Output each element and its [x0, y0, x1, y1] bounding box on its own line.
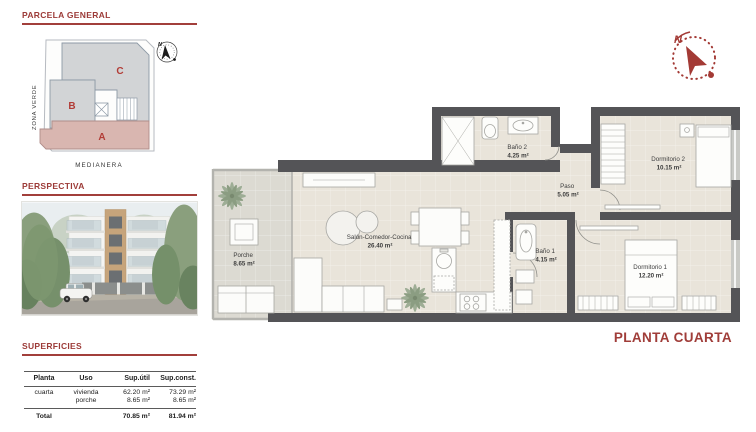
- superficies-heading: SUPERFICIES: [22, 341, 197, 356]
- col-sup-util: Sup.útil: [108, 372, 150, 387]
- floor-plan: Porche 8.65 m² Salón-Comedor-Cocina 26.4…: [210, 100, 750, 338]
- room-label-bano2: Baño 2 4.25 m²: [507, 144, 528, 160]
- cell-sup-util: 62.20 m² 8.65 m²: [108, 387, 150, 409]
- parcela-general-heading: PARCELA GENERAL: [22, 10, 197, 25]
- elevator: [95, 103, 108, 116]
- room-label-porche: Porche 8.65 m²: [233, 252, 254, 268]
- room-label-paso: Paso 5.05 m²: [557, 183, 578, 199]
- col-planta: Planta: [24, 372, 64, 387]
- medianera-label: MEDIANERA: [75, 162, 123, 169]
- zona-verde-label: ZONA VERDE: [32, 85, 38, 130]
- palm-plant: [218, 182, 246, 210]
- table-total-row: Total 70.85 m² 81.94 m²: [24, 408, 196, 422]
- building-render: [22, 202, 197, 315]
- cell-total-util: 70.85 m²: [108, 408, 150, 422]
- stairs: [117, 98, 137, 120]
- block-b-label: B: [68, 101, 75, 112]
- room-label-bano1: Baño 1 4.15 m²: [535, 248, 556, 264]
- col-sup-const: Sup.const.: [150, 372, 196, 387]
- cell-total-const: 81.94 m²: [150, 408, 196, 422]
- cell-uso: vivienda porche: [64, 387, 108, 409]
- cell-sup-const: 73.29 m² 8.65 m²: [150, 387, 196, 409]
- perspectiva-heading: PERSPECTIVA: [22, 181, 197, 196]
- cell-total-label: Total: [24, 408, 64, 422]
- site-plan: C B A ZONA VERDE MEDIANERA N: [22, 33, 197, 178]
- block-c-label: C: [116, 66, 123, 77]
- svg-text:N: N: [674, 34, 683, 46]
- site-compass-icon: N: [157, 42, 177, 62]
- north-compass-icon: N: [662, 24, 726, 88]
- table-row: cuarta vivienda porche 62.20 m² 8.65 m² …: [24, 387, 196, 409]
- plan-sheet: PARCELA GENERAL C B A ZONA: [0, 0, 756, 432]
- col-uso: Uso: [64, 372, 108, 387]
- indoor-plant: [401, 284, 429, 312]
- block-a-label: A: [98, 132, 105, 143]
- areas-table: Planta Uso Sup.útil Sup.const. cuarta vi…: [24, 371, 196, 422]
- cell-planta: cuarta: [24, 387, 64, 409]
- floor-plan-title: PLANTA CUARTA: [560, 330, 732, 345]
- block-a: [40, 121, 149, 149]
- table-header-row: Planta Uso Sup.útil Sup.const.: [24, 372, 196, 387]
